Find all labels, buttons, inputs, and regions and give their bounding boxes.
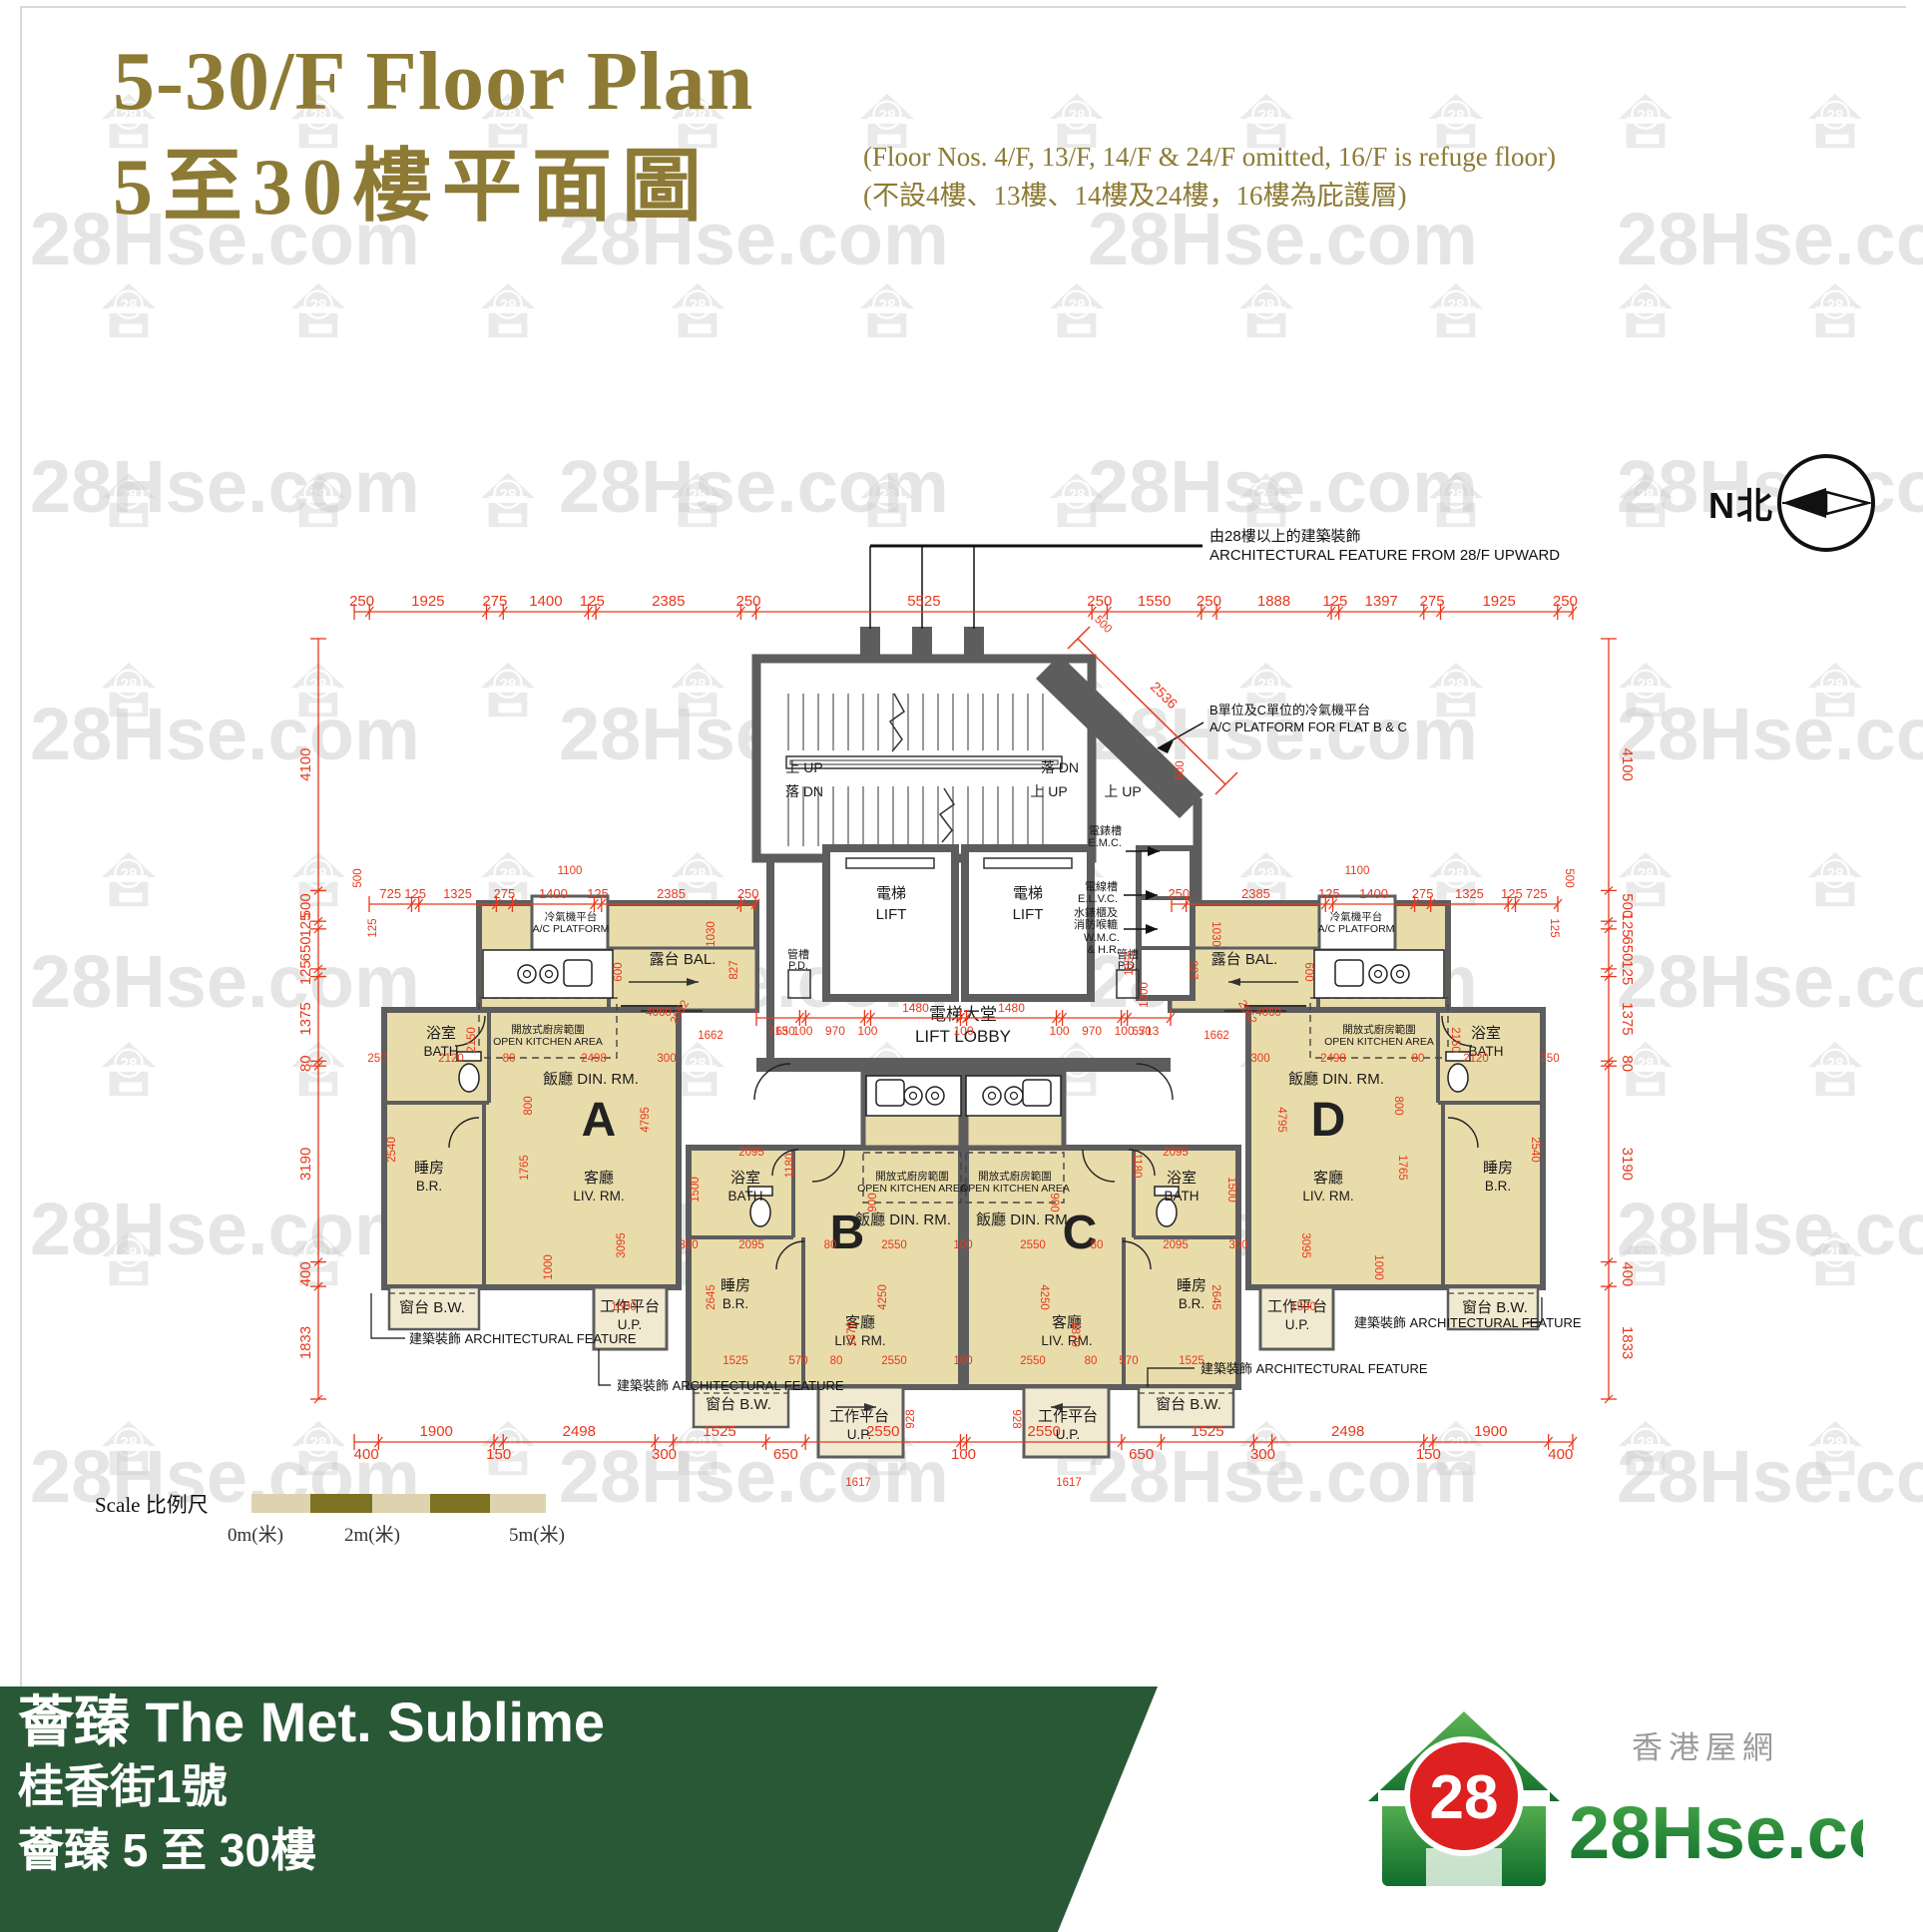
scale-5m: 5m(米) — [509, 1524, 565, 1546]
logo-house-icon: 28 — [1368, 1711, 1560, 1886]
inner-dim-label: 2120 — [1463, 1053, 1489, 1065]
inner-dim-label: 928 — [905, 1409, 917, 1428]
inner-dim-label: 900 — [1048, 1193, 1060, 1211]
inner-dim-label: 650 — [775, 1026, 794, 1038]
inner-dim-label: 300 — [1250, 1053, 1269, 1065]
inner-dim-label: 500 — [1175, 760, 1187, 779]
inner-dim-label: 500 — [1092, 614, 1114, 636]
inner-dim-label: 800 — [523, 1096, 535, 1115]
inner-dim-label: 250 — [1540, 1053, 1559, 1065]
scale-2m: 2m(米) — [344, 1524, 400, 1546]
pd-left-zh: 管槽 — [787, 947, 809, 961]
inner-dim-label: 4250 — [877, 1284, 889, 1310]
logo-tagline: 香港屋網 — [1632, 1730, 1779, 1765]
inner-dim-label: 4795 — [1275, 1107, 1287, 1133]
room-label-en: BATH — [1164, 1189, 1199, 1204]
inner-dim-label: 1000 — [1372, 1254, 1384, 1280]
lift2-label-en: LIFT — [1013, 906, 1044, 923]
dim-label: 100 — [953, 1024, 973, 1038]
floor-note-en: (Floor Nos. 4/F, 13/F, 14/F & 24/F omitt… — [863, 138, 1761, 177]
room-label-zh: 睡房 — [1483, 1160, 1513, 1177]
inner-dim-label: 300 — [679, 1239, 698, 1251]
dim-label: 125 — [587, 886, 609, 901]
lift2-label-zh: 電梯 — [1013, 885, 1043, 902]
room-label-en: LIV. RM. — [1302, 1189, 1353, 1204]
dim-label: 125 — [297, 960, 314, 985]
dim-label: 80 — [1619, 1055, 1636, 1072]
floor-plan: 由28樓以上的建築裝飾 ARCHITECTURAL FEATURE FROM 2… — [0, 0, 1923, 1687]
dim-label: 125 — [1501, 886, 1523, 901]
inner-dim-label: 1500 — [1290, 1301, 1316, 1313]
inner-dim-label: 100 — [953, 1355, 972, 1367]
logo-text: 28Hse.com — [1569, 1791, 1863, 1874]
inner-dim-label: 570 — [1119, 1355, 1138, 1367]
inner-dim-label: 3095 — [1299, 1232, 1311, 1258]
dim-label: 1375 — [297, 1002, 314, 1035]
dim-label: 3190 — [1619, 1148, 1636, 1181]
room-label-en: LIV. RM. — [1041, 1333, 1092, 1348]
unit-letter-A: A — [582, 1094, 617, 1147]
room-label-zh: 睡房 — [414, 1160, 444, 1177]
sink-icon — [564, 960, 592, 986]
wmc-label-zh2: 消防喉轆 — [1074, 917, 1118, 931]
room-label-zh: 客廳 — [1313, 1169, 1343, 1187]
inner-dim-label: 1870 — [1069, 1321, 1081, 1347]
dim-label: 1400 — [529, 593, 562, 610]
inner-dim-label: 827 — [1187, 960, 1199, 979]
room-label-zh: 工作平台 — [1038, 1408, 1098, 1425]
inner-dim-label: 2550 — [1020, 1355, 1046, 1367]
dim-label: 1525 — [1191, 1423, 1223, 1440]
dim-label: 1888 — [1257, 593, 1290, 610]
floor-note-zh: (不設4樓、13樓、14樓及24樓，16樓為庇護層) — [863, 177, 1761, 216]
inner-dim-label: 2498 — [1320, 1053, 1346, 1065]
inner-dim-label: 80 — [830, 1355, 843, 1367]
room-label-zh: 開放式廚房範圍 — [978, 1170, 1052, 1183]
room-label-en: U.P. — [1056, 1427, 1081, 1442]
arch-feature-2: 建築裝飾 ARCHITECTURAL FEATURE — [617, 1378, 844, 1393]
dim-chain-v: 410050012565012513758031904001833 — [297, 639, 326, 1403]
pd-left-en: P.D. — [788, 960, 808, 972]
dim-label: 400 — [297, 1261, 314, 1286]
inner-dim-label: 80 — [824, 1239, 837, 1251]
room-label: 露台 BAL. — [1211, 951, 1278, 968]
inner-dim-label: 570 — [788, 1355, 807, 1367]
floor-note: (Floor Nos. 4/F, 13/F, 14/F & 24/F omitt… — [863, 138, 1761, 216]
inner-dim-label: 1180 — [1131, 1154, 1143, 1179]
inner-dim-label: 2540 — [386, 1137, 398, 1163]
scale-bar-segments — [251, 1494, 546, 1513]
inner-dim-label: 125 — [367, 918, 379, 937]
scale-0m: 0m(米) — [228, 1524, 283, 1546]
emc-label-zh: 電錶槽 — [1089, 824, 1122, 837]
room-label-en: U.P. — [1285, 1317, 1310, 1332]
room-label-en: B.R. — [722, 1296, 748, 1311]
room-label-zh: 浴室 — [1471, 1025, 1501, 1042]
sink-icon — [1023, 1080, 1051, 1106]
room-label-en: B.R. — [416, 1179, 442, 1194]
scale-segment — [430, 1494, 490, 1513]
footer-text: 薈臻 The Met. Sublime 桂香街1號 薈臻 5 至 30樓 — [18, 1689, 605, 1881]
sink-icon — [876, 1080, 904, 1106]
inner-dim-label: 300 — [1228, 1239, 1247, 1251]
dim-label: 1900 — [420, 1423, 453, 1440]
inner-dim-label: 500 — [352, 868, 364, 887]
inner-dim-label: 1030 — [1209, 921, 1221, 947]
room-label-zh: 冷氣機平台 — [1330, 910, 1383, 923]
dim-label: 250 — [1197, 593, 1221, 610]
arch28-note-zh: 由28樓以上的建築裝飾 — [1209, 527, 1361, 545]
inner-dim-label: 650 — [1132, 1026, 1151, 1038]
inner-dim-label: 4795 — [640, 1107, 652, 1133]
dim-chain-h: 4001900150249830015256502550100255065015… — [354, 1423, 1577, 1463]
inner-dim-label: 1525 — [722, 1355, 748, 1367]
unit-letter-C: C — [1063, 1207, 1098, 1259]
inner-dim-label: 500 — [1563, 868, 1575, 887]
dim-label: 125 — [580, 593, 605, 610]
inner-dim-label: 2498 — [581, 1053, 607, 1065]
room-label-en: BATH — [727, 1189, 762, 1204]
stair-up-left: 上 UP — [785, 759, 822, 775]
dim-label: 1325 — [1455, 886, 1484, 901]
inner-dim-label: 2645 — [706, 1284, 718, 1310]
dim-label: 250 — [349, 593, 374, 610]
room-label-zh: 睡房 — [1177, 1277, 1206, 1294]
dim-label: 5525 — [907, 593, 940, 610]
inner-dim-label: 3095 — [616, 1232, 628, 1258]
elvc-label-en: E.L.V.C. — [1078, 893, 1118, 905]
inner-dim-label: 4060 — [646, 1007, 672, 1019]
room-label-zh: 客廳 — [584, 1169, 614, 1187]
inner-dim-label: 2120 — [438, 1053, 464, 1065]
stair-dn-right: 落 DN — [1041, 759, 1079, 775]
inner-dim-label: 100 — [953, 1239, 972, 1251]
inner-dim-label: 2095 — [1163, 1147, 1189, 1159]
room-label-en: OPEN KITCHEN AREA — [1324, 1036, 1434, 1048]
inner-dim-label: 2095 — [738, 1147, 764, 1159]
inner-dim-label: 928 — [1010, 1409, 1022, 1428]
kitchen-counter — [483, 950, 613, 998]
acbc-arrow — [1158, 723, 1203, 753]
room-label: 飯廳 DIN. RM. — [976, 1210, 1072, 1228]
room-label-zh: 冷氣機平台 — [545, 910, 598, 923]
room-label-en: LIV. RM. — [834, 1333, 885, 1348]
dim-chain-v: 410050012565012513758031904001833 — [1601, 639, 1636, 1403]
dim-label: 150 — [486, 1446, 511, 1463]
dim-label: 1833 — [297, 1326, 314, 1359]
room-label: 飯廳 DIN. RM. — [855, 1210, 951, 1228]
dim-label: 1397 — [1365, 593, 1398, 610]
inner-dim-label: 1100 — [558, 865, 583, 877]
room-label-en: B.R. — [1179, 1296, 1204, 1311]
inner-dim-label: 600 — [613, 962, 625, 981]
unit-letter-B: B — [830, 1207, 865, 1259]
scale-label: Scale 比例尺 — [95, 1493, 209, 1517]
estate-address: 桂香街1號 — [18, 1757, 605, 1817]
dim-label: 650 — [297, 936, 314, 961]
inner-dim-label: 2540 — [1529, 1137, 1541, 1163]
acbc-note-zh: B單位及C單位的冷氣機平台 — [1209, 703, 1370, 718]
lift1-label-zh: 電梯 — [876, 885, 906, 902]
dim-label: 4100 — [1619, 748, 1636, 781]
arch-feature-1: 建築裝飾 ARCHITECTURAL FEATURE — [409, 1331, 637, 1346]
room-label: 窗台 B.W. — [399, 1298, 465, 1316]
stair-up-right: 上 UP — [1030, 783, 1067, 799]
dim-chain-h: 2501925275140012523852505525250155025018… — [349, 593, 1578, 620]
dim-label: 1925 — [1482, 593, 1515, 610]
dim-label: 1480 — [902, 1001, 929, 1015]
stair-dn-left: 落 DN — [785, 783, 823, 799]
dim-label: 80 — [297, 1055, 314, 1072]
dim-label: 250 — [736, 593, 761, 610]
unit-letter-D: D — [1311, 1094, 1346, 1147]
dim-label: 725 — [1526, 886, 1548, 901]
inner-dim-label: 900 — [867, 1193, 879, 1211]
inner-dim-label: 300 — [657, 1053, 676, 1065]
inner-dim-label: 125 — [1548, 918, 1560, 937]
toilet-icon — [1448, 1064, 1468, 1092]
dim-label: 1375 — [1619, 1002, 1636, 1035]
sink-icon — [1335, 960, 1363, 986]
north-compass: N北 — [1708, 451, 1878, 555]
inner-dim-label: 1500 — [1225, 1177, 1237, 1203]
toilet-icon — [459, 1064, 479, 1092]
inner-dim-label: 1617 — [845, 1477, 871, 1489]
room-label-zh: 開放式廚房範圍 — [511, 1023, 585, 1036]
room-label-en: A/C PLATFORM — [1318, 923, 1395, 935]
site-logo[interactable]: 28 28Hse.com 香港屋網 — [1364, 1696, 1863, 1922]
scale-segment — [372, 1494, 430, 1513]
inner-dim-label: 2550 — [881, 1355, 907, 1367]
inner-dim-label: 1055 — [1124, 950, 1136, 976]
header: 5-30/F Floor Plan 5至30樓平面圖 — [113, 40, 753, 230]
scale-bar: Scale 比例尺 0m(米) 2m(米) 5m(米) — [95, 1493, 565, 1546]
dim-label: 1400 — [1359, 886, 1388, 901]
dim-label: 1900 — [1474, 1423, 1507, 1440]
room-label: 窗台 B.W. — [1462, 1298, 1528, 1316]
inner-dim-label: 2095 — [1163, 1239, 1189, 1251]
dim-label: 650 — [1129, 1446, 1154, 1463]
inner-dim-label: 250 — [367, 1053, 386, 1065]
dim-label: 400 — [354, 1446, 379, 1463]
dim-label: 250 — [1087, 593, 1112, 610]
dim-label: 125 — [1619, 913, 1636, 938]
wmc-label-en2: & H.R. — [1088, 944, 1120, 956]
dim-label: 1325 — [443, 886, 472, 901]
arch-feature-4: 建築裝飾 ARCHITECTURAL FEATURE — [1354, 1315, 1582, 1330]
dim-label: 125 — [1619, 960, 1636, 985]
compass-icon — [1774, 451, 1878, 555]
arch28-note-en: ARCHITECTURAL FEATURE FROM 28/F UPWARD — [1209, 547, 1560, 564]
dim-label: 4100 — [297, 748, 314, 781]
scale-segment — [251, 1494, 310, 1513]
room-label-zh: 開放式廚房範圍 — [1342, 1023, 1416, 1036]
dim-label: 970 — [825, 1024, 845, 1038]
room-label-en: LIV. RM. — [573, 1189, 624, 1204]
inner-dim-label: 1500 — [611, 1301, 637, 1313]
inner-dim-label: 2550 — [1020, 1239, 1046, 1251]
arch-feature-3: 建築裝飾 ARCHITECTURAL FEATURE — [1201, 1361, 1428, 1376]
logo-block: 28 28Hse.com 香港屋網 — [1364, 1696, 1863, 1922]
stair-up-far-right: 上 UP — [1104, 783, 1141, 799]
room-label-en: U.P. — [847, 1427, 872, 1442]
dim-label: 2498 — [563, 1423, 596, 1440]
kitchen-counter — [1314, 950, 1444, 998]
inner-dim-label: 2095 — [738, 1239, 764, 1251]
dim-label: 125 — [404, 886, 426, 901]
inner-dim-label: 1870 — [846, 1321, 858, 1347]
dim-label: 100 — [792, 1024, 812, 1038]
room-label: 露台 BAL. — [650, 951, 717, 968]
room-label: 飯廳 DIN. RM. — [1288, 1070, 1384, 1088]
inner-dim-label: 600 — [1302, 962, 1314, 981]
dim-label: 725 — [379, 886, 401, 901]
dim-label: 1550 — [1138, 593, 1171, 610]
inner-dim-label: 2550 — [881, 1239, 907, 1251]
dim-label: 250 — [1553, 593, 1578, 610]
acbc-note-en: A/C PLATFORM FOR FLAT B & C — [1209, 720, 1407, 734]
logo-badge: 28 — [1430, 1763, 1499, 1832]
room-label-zh: 睡房 — [721, 1277, 750, 1294]
dim-label: 650 — [773, 1446, 798, 1463]
dim-label: 100 — [857, 1024, 877, 1038]
dim-label: 400 — [1548, 1446, 1573, 1463]
inner-dim-label: 1617 — [1056, 1477, 1082, 1489]
inner-dim-label: 1662 — [1203, 1030, 1229, 1042]
room-label: 窗台 B.W. — [1156, 1395, 1221, 1413]
dim-label: 150 — [1416, 1446, 1441, 1463]
wmc-label-zh1: 水錶櫃及 — [1074, 905, 1118, 919]
inner-dim-label: 2150 — [1449, 1027, 1461, 1053]
inner-dim-label: 80 — [1412, 1053, 1425, 1065]
inner-dim-label: 1765 — [519, 1155, 531, 1181]
inner-dim-label: 1000 — [543, 1254, 555, 1280]
wmc-label-en1: W.M.C. — [1084, 932, 1120, 944]
dim-label: 1925 — [411, 593, 444, 610]
dim-label: 125 — [297, 913, 314, 938]
dim-label: 2498 — [1331, 1423, 1364, 1440]
dim-label: 400 — [1619, 1261, 1636, 1286]
inner-dim-label: 80 — [1085, 1355, 1098, 1367]
room-label-zh: 工作平台 — [829, 1408, 889, 1425]
dim-label: 650 — [1619, 936, 1636, 961]
room-label-en: A/C PLATFORM — [533, 923, 610, 935]
dim-label: 3190 — [297, 1148, 314, 1181]
diag-dim-label: 2536 — [1148, 679, 1181, 712]
room-label-zh: 浴室 — [1167, 1170, 1197, 1187]
north-label: N北 — [1708, 477, 1774, 529]
inner-dim-label: 1765 — [1396, 1155, 1408, 1181]
inner-dim-label: 80 — [1091, 1239, 1104, 1251]
dim-label: 1480 — [998, 1001, 1025, 1015]
scale-segment — [310, 1494, 372, 1513]
inner-dim-label: 827 — [728, 960, 740, 979]
estate-name: 薈臻 The Met. Sublime — [18, 1689, 605, 1755]
inner-dim-label: 80 — [503, 1053, 516, 1065]
room-label-en: B.R. — [1485, 1179, 1511, 1194]
inner-dim-label: 1500 — [690, 1177, 702, 1203]
footer-band: 薈臻 The Met. Sublime 桂香街1號 薈臻 5 至 30樓 28 — [0, 1687, 1923, 1932]
inner-dim-label: 1030 — [706, 921, 718, 947]
dim-label: 2385 — [652, 593, 685, 610]
room-label-zh: 浴室 — [730, 1170, 760, 1187]
inner-dim-label: 4250 — [1038, 1284, 1050, 1310]
dim-label: 125 — [1318, 886, 1340, 901]
inner-dim-label: 2645 — [1209, 1284, 1221, 1310]
room-label-zh: 浴室 — [426, 1025, 456, 1042]
dim-label: 100 — [1050, 1024, 1070, 1038]
estate-floors: 薈臻 5 至 30樓 — [18, 1821, 605, 1881]
room-label: 窗台 B.W. — [706, 1395, 771, 1413]
inner-dim-label: 800 — [1392, 1096, 1404, 1115]
inner-dim-label: 1662 — [698, 1030, 723, 1042]
room-label-en: OPEN KITCHEN AREA — [493, 1036, 603, 1048]
inner-dim-label: 1100 — [1345, 865, 1370, 877]
room-label-zh: 開放式廚房範圍 — [875, 1170, 949, 1183]
inner-dim-label: 1525 — [1179, 1355, 1204, 1367]
inner-dim-label: 1200 — [1139, 982, 1151, 1008]
scale-segment — [490, 1494, 546, 1513]
room-label-en: OPEN KITCHEN AREA — [857, 1183, 967, 1195]
elvc-label-zh: 電線槽 — [1085, 879, 1118, 893]
dim-label: 1833 — [1619, 1326, 1636, 1359]
lift1-label-en: LIFT — [876, 906, 907, 923]
room-label: 飯廳 DIN. RM. — [543, 1070, 639, 1088]
dim-label: 125 — [1322, 593, 1347, 610]
emc-label-en: E.M.C. — [1088, 837, 1122, 849]
room-label-en: U.P. — [618, 1317, 643, 1332]
dim-label: 1525 — [703, 1423, 735, 1440]
page-title-zh: 5至30樓平面圖 — [113, 146, 753, 230]
inner-dim-label: 4060 — [1255, 1007, 1281, 1019]
inner-dim-label: 1180 — [784, 1154, 796, 1179]
dim-label: 100 — [951, 1446, 976, 1463]
dim-label: 970 — [1082, 1024, 1102, 1038]
dim-label: 2385 — [657, 886, 686, 901]
dim-label: 1400 — [539, 886, 568, 901]
arch-feature-28-callout — [870, 546, 1202, 629]
page-title-en: 5-30/F Floor Plan — [113, 40, 753, 124]
inner-dim-label: 2150 — [466, 1027, 478, 1053]
dim-label: 2385 — [1241, 886, 1270, 901]
